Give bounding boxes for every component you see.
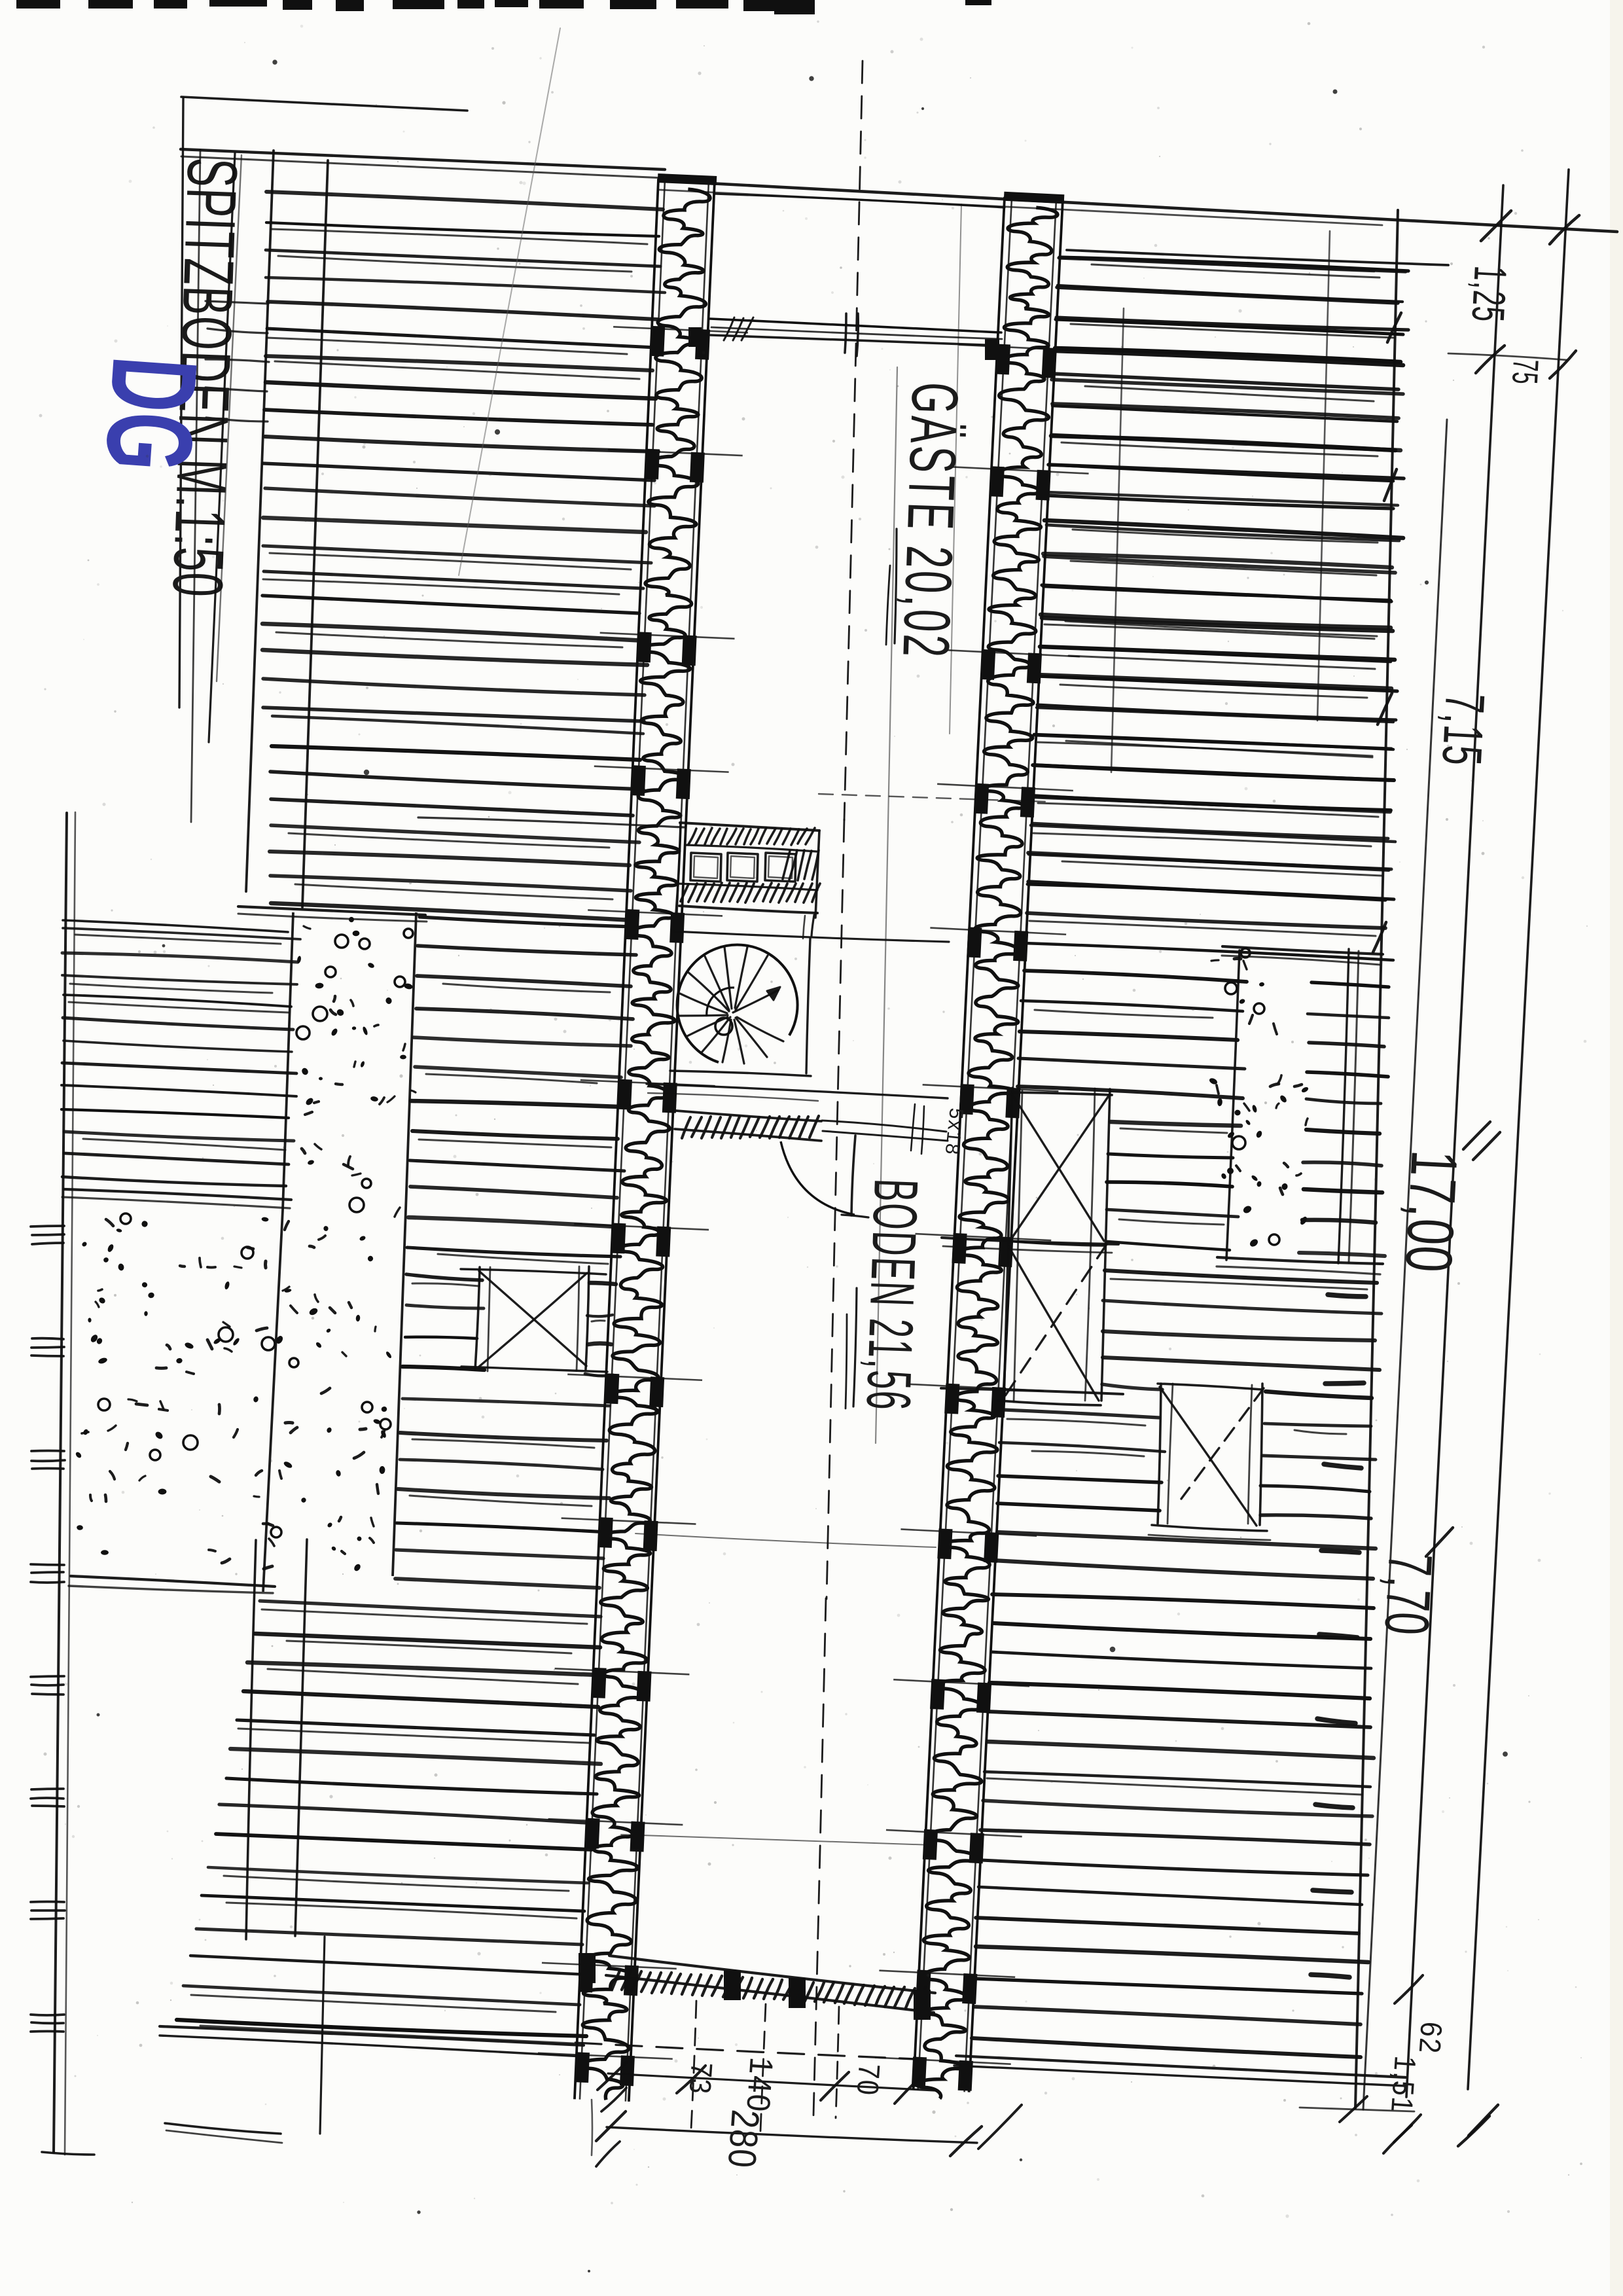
- svg-text:280: 280: [720, 2108, 768, 2170]
- svg-text:140: 140: [740, 2056, 779, 2114]
- svg-text:17,00: 17,00: [1391, 1149, 1471, 1275]
- svg-text:1,25: 1,25: [1462, 264, 1516, 323]
- svg-text:DG: DG: [80, 353, 223, 476]
- svg-text:BODEN 21,56: BODEN 21,56: [853, 1177, 931, 1412]
- svg-text:1,51: 1,51: [1384, 2054, 1422, 2114]
- svg-text:75: 75: [1505, 358, 1546, 386]
- svg-text:GÄSTE 20,02: GÄSTE 20,02: [889, 381, 972, 660]
- svg-text:62: 62: [1412, 2020, 1448, 2055]
- svg-text:73: 73: [683, 2061, 719, 2096]
- svg-text:70: 70: [850, 2062, 886, 2097]
- svg-text:7,15: 7,15: [1430, 692, 1496, 768]
- svg-text:7,70: 7,70: [1372, 1552, 1446, 1638]
